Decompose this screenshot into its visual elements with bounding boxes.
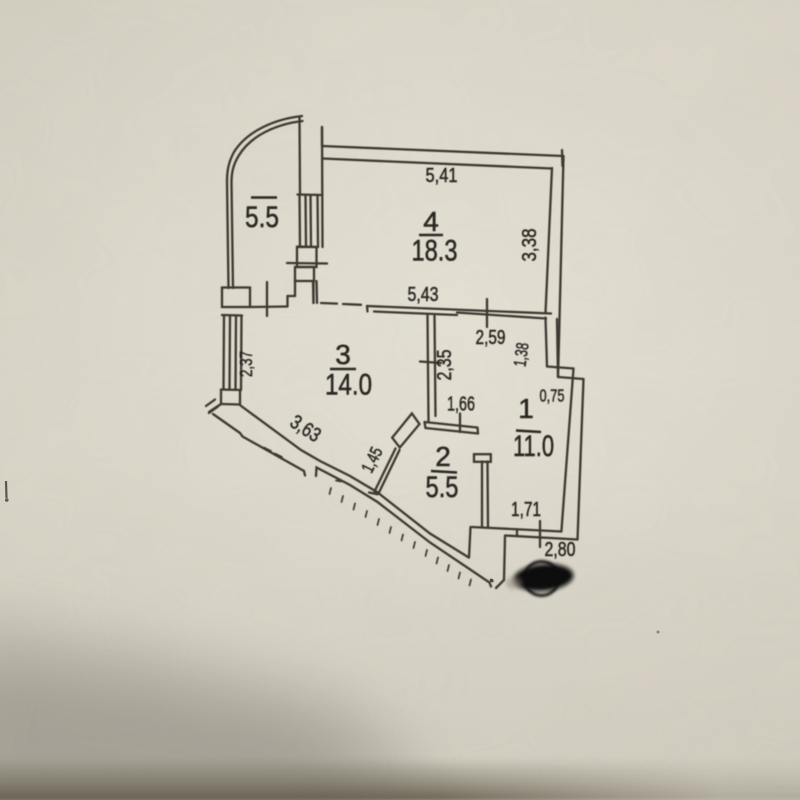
svg-text:3,38: 3,38 <box>519 229 541 262</box>
svg-text:2,35: 2,35 <box>434 350 456 381</box>
svg-text:3: 3 <box>335 339 351 370</box>
svg-text:0,75: 0,75 <box>540 386 565 406</box>
svg-text:2,59: 2,59 <box>476 327 506 349</box>
svg-text:2: 2 <box>435 441 451 472</box>
svg-text:5.5: 5.5 <box>245 201 279 234</box>
svg-text:2,80: 2,80 <box>545 539 576 561</box>
svg-text:1: 1 <box>518 393 534 424</box>
svg-text:1,38: 1,38 <box>509 341 532 368</box>
svg-text:5.5: 5.5 <box>426 471 459 504</box>
svg-text:14.0: 14.0 <box>325 369 372 402</box>
svg-text:5,43: 5,43 <box>408 284 439 306</box>
svg-text:5,41: 5,41 <box>426 165 458 187</box>
svg-text:1,66: 1,66 <box>447 394 475 416</box>
svg-text:4: 4 <box>423 206 439 237</box>
svg-text:2,37: 2,37 <box>236 351 256 377</box>
svg-text:1,71: 1,71 <box>511 499 541 521</box>
svg-text:11.0: 11.0 <box>513 430 554 463</box>
svg-text:18.3: 18.3 <box>412 235 458 268</box>
